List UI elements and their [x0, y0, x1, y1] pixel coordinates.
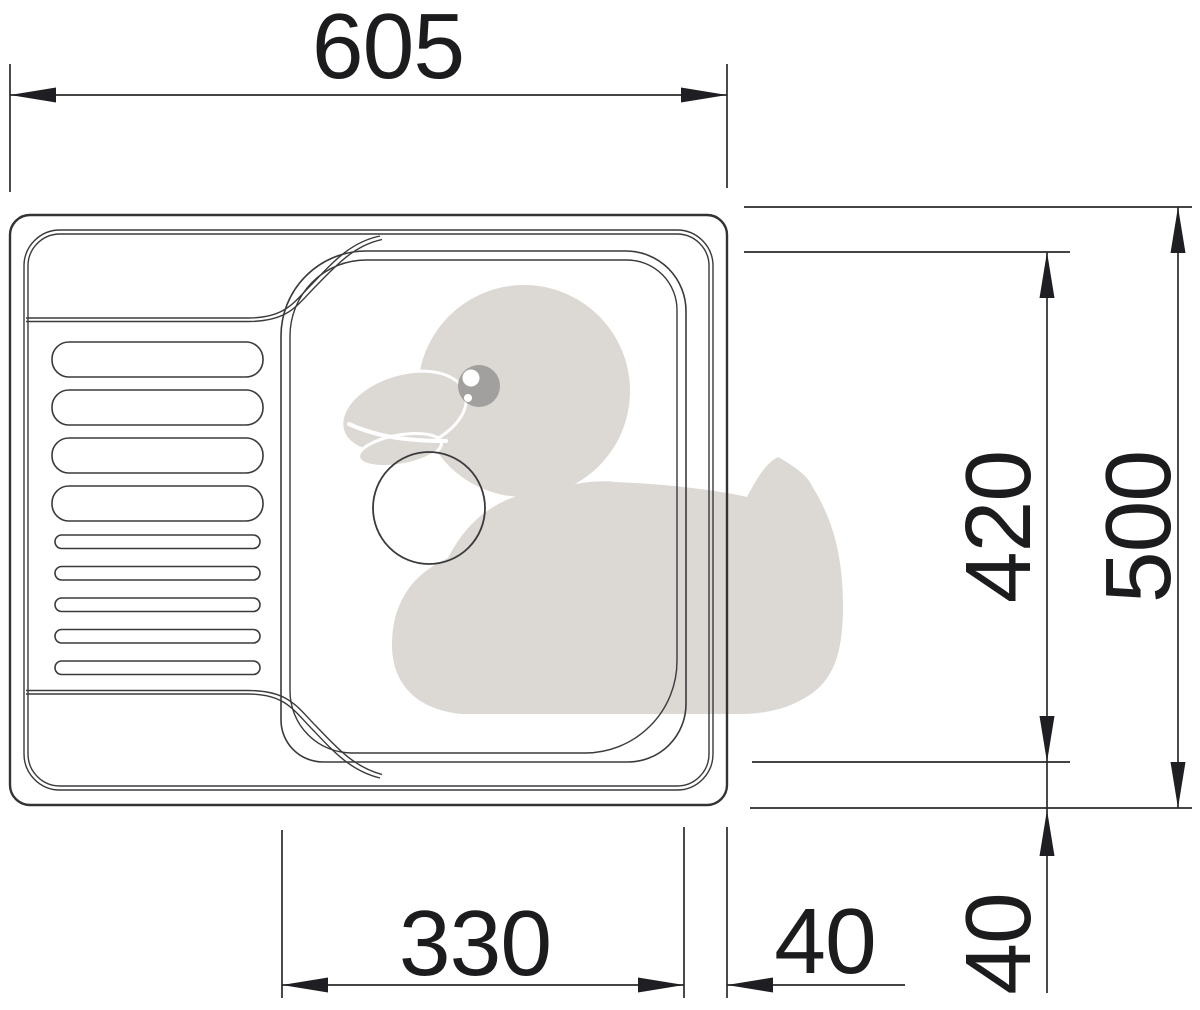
dimension-label-overall-width: 605 — [312, 0, 464, 98]
arrowhead-right — [681, 88, 727, 103]
dimension-bowl-width: 330 — [282, 827, 684, 998]
dimension-label-rim-gap-bottom: 40 — [774, 889, 875, 993]
dimension-label-rim-gap-right: 40 — [946, 893, 1050, 994]
arrowhead-up — [1171, 207, 1186, 253]
arrowhead-down — [1040, 716, 1055, 762]
sink-technical-drawing: 605 420 500 40 330 40 — [0, 0, 1200, 1010]
drainboard-ribs-narrow — [55, 535, 260, 675]
dimension-label-bowl-height: 420 — [946, 451, 1050, 603]
arrowhead-up — [1040, 252, 1055, 298]
duck-eye — [458, 365, 500, 407]
dimension-rim-gap-bottom: 40 — [727, 827, 905, 998]
arrowhead-left — [10, 88, 56, 103]
dimension-label-bowl-width: 330 — [399, 891, 551, 995]
drainboard-bottom-divider — [26, 694, 380, 778]
drainboard-top-divider-2 — [26, 240, 382, 322]
duck-body — [392, 457, 843, 714]
arrowhead-up — [1040, 810, 1055, 856]
arrowhead-left — [727, 978, 773, 993]
rubber-duck-watermark-icon — [332, 285, 843, 714]
dimension-rim-gap-right: 40 — [946, 810, 1055, 995]
arrowhead-right — [638, 978, 684, 993]
arrowhead-left — [282, 978, 328, 993]
duck-eye-highlight — [463, 370, 480, 387]
dimension-overall-width: 605 — [10, 0, 727, 192]
drainboard-top-divider — [26, 236, 380, 318]
duck-eye-highlight-small — [464, 394, 472, 402]
dimension-label-overall-depth: 500 — [1086, 451, 1190, 603]
arrowhead-down — [1171, 762, 1186, 808]
drainboard-ribs-wide — [52, 342, 263, 521]
drain-hole — [373, 452, 485, 564]
